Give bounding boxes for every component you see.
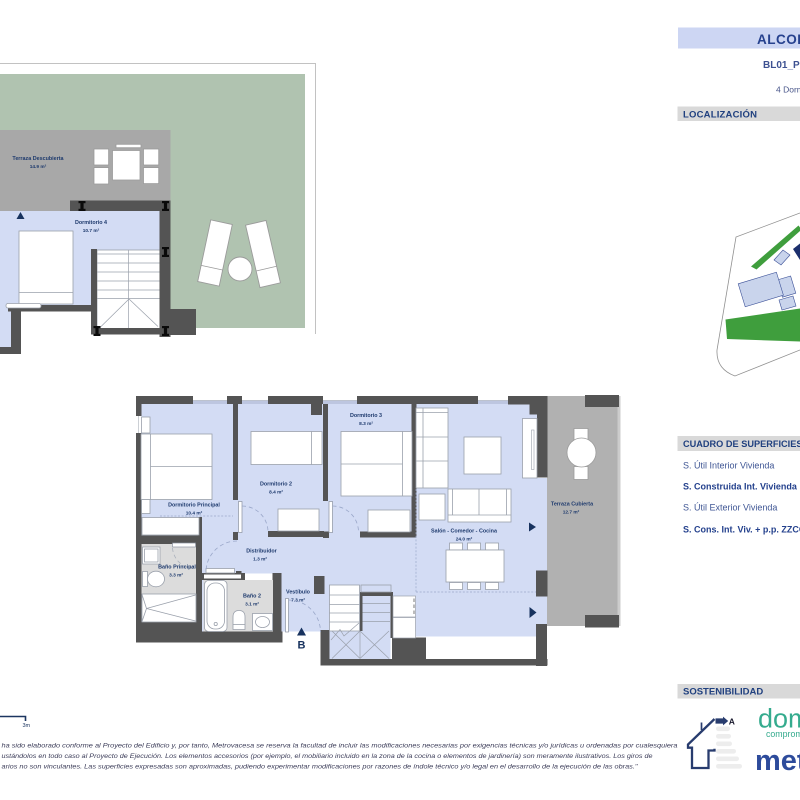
svg-text:S. Cons. Int. Viv. + p.p. ZZCC: S. Cons. Int. Viv. + p.p. ZZCC xyxy=(683,525,800,535)
svg-text:Dormitorio 3: Dormitorio 3 xyxy=(350,413,382,419)
svg-text:compromiso: compromiso xyxy=(766,729,800,739)
svg-text:Terraza Cubierta: Terraza Cubierta xyxy=(551,502,594,508)
svg-text:Dormitorio 4: Dormitorio 4 xyxy=(75,220,107,226)
svg-text:4 Dormitorios: 4 Dormitorios xyxy=(776,85,800,95)
svg-text:3m: 3m xyxy=(23,723,31,729)
svg-text:8.3 m²: 8.3 m² xyxy=(359,421,373,427)
svg-text:Vestíbulo: Vestíbulo xyxy=(286,590,311,596)
svg-text:8.4 m²: 8.4 m² xyxy=(269,490,283,496)
svg-text:10.7 m²: 10.7 m² xyxy=(83,228,100,234)
svg-text:Distribuidor: Distribuidor xyxy=(246,549,277,555)
svg-text:14.9 m²: 14.9 m² xyxy=(30,164,47,170)
svg-text:A: A xyxy=(729,717,735,727)
svg-text:B: B xyxy=(298,640,306,652)
svg-text:S. Útil Exterior Vivienda: S. Útil Exterior Vivienda xyxy=(683,503,777,513)
svg-text:ha sido elaborado conforme al: ha sido elaborado conforme al Proyecto d… xyxy=(2,743,678,750)
svg-text:Baño 2: Baño 2 xyxy=(243,594,261,600)
svg-text:arios no son vinculantes. Las: arios no son vinculantes. Las superficie… xyxy=(2,764,639,771)
svg-text:CUADRO DE SUPERFICIES: CUADRO DE SUPERFICIES xyxy=(683,439,800,449)
svg-text:1.3 m²: 1.3 m² xyxy=(253,557,267,563)
svg-text:Dormitorio 2: Dormitorio 2 xyxy=(260,482,292,488)
svg-text:10.4 m²: 10.4 m² xyxy=(186,511,203,517)
svg-text:Dormitorio Principal: Dormitorio Principal xyxy=(168,503,220,509)
svg-text:Salón - Comedor - Cocina: Salón - Comedor - Cocina xyxy=(431,529,498,535)
svg-text:metrovacesa: metrovacesa xyxy=(755,745,800,777)
svg-text:S. Útil Interior Vivienda: S. Útil Interior Vivienda xyxy=(683,461,774,471)
svg-text:ustándolos en todo caso al Pro: ustándolos en todo caso al Proyecto de E… xyxy=(2,753,653,760)
svg-text:BL01_P6_B: BL01_P6_B xyxy=(763,60,800,71)
svg-text:24.0 m²: 24.0 m² xyxy=(456,537,473,543)
svg-text:LOCALIZACIÓN: LOCALIZACIÓN xyxy=(683,109,757,121)
svg-text:SOSTENIBILIDAD: SOSTENIBILIDAD xyxy=(683,687,763,698)
svg-text:3.1 m²: 3.1 m² xyxy=(245,602,259,608)
svg-text:7.3 m²: 7.3 m² xyxy=(291,598,305,604)
svg-text:Baño Principal: Baño Principal xyxy=(158,565,196,571)
svg-text:12.7 m²: 12.7 m² xyxy=(563,510,580,516)
svg-text:S. Construida Int. Vivienda: S. Construida Int. Vivienda xyxy=(683,482,798,492)
svg-text:ALCORA: ALCORA xyxy=(757,32,800,47)
svg-text:Terraza Descubierta: Terraza Descubierta xyxy=(12,156,64,162)
svg-text:3.3 m²: 3.3 m² xyxy=(169,573,183,579)
